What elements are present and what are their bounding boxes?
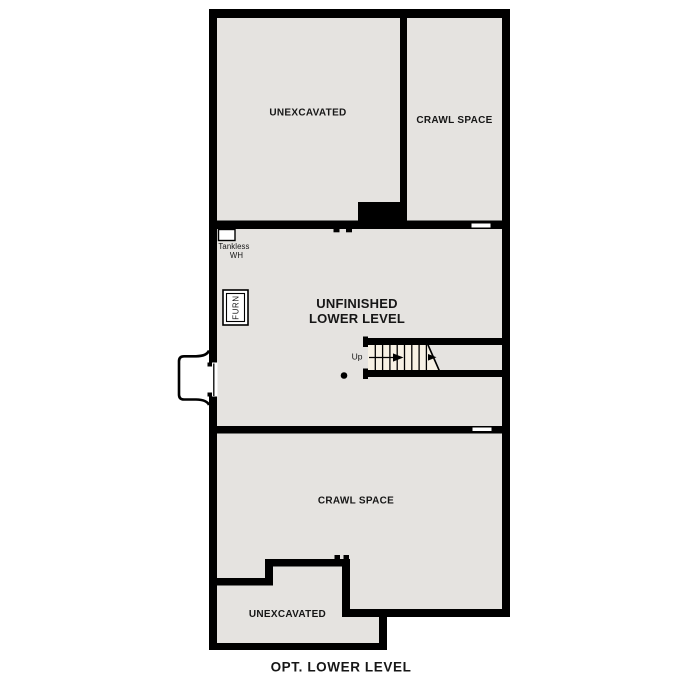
stair-up-label: Up: [352, 352, 363, 362]
window-jamb: [208, 363, 213, 367]
window-lower-wall: [473, 428, 492, 432]
room-unexcavated-top: [217, 18, 400, 221]
label-crawl-space-bottom: CRAWL SPACE: [318, 496, 394, 507]
stair-wall-bottom: [363, 370, 510, 377]
room-unfinished-lower-level: [217, 229, 502, 426]
support-post-icon: [341, 372, 348, 379]
door-jamb-icon: [335, 555, 341, 559]
window-well-outline: [179, 351, 209, 406]
door-jamb-icon: [334, 229, 340, 232]
door-jamb-icon: [346, 229, 352, 232]
floor-plan-page: Up Tankless WH FURN UNEXCAVATED CRAWL SP…: [0, 0, 687, 687]
furnace: FURN: [223, 290, 248, 325]
label-crawl-space-top: CRAWL SPACE: [416, 115, 492, 126]
tankless-wh-label-line1: Tankless: [218, 242, 249, 251]
label-unexcavated-bottom: UNEXCAVATED: [249, 609, 326, 620]
window-jamb: [208, 393, 213, 397]
window-upper-wall: [472, 224, 491, 228]
plan-title: OPT. LOWER LEVEL: [271, 660, 412, 675]
wall-block: [358, 202, 407, 229]
tankless-wh-box: [219, 230, 236, 241]
label-unfinished-line2: LOWER LEVEL: [309, 311, 405, 326]
label-unexcavated-top: UNEXCAVATED: [269, 108, 346, 119]
tankless-wh-label-line2: WH: [230, 251, 243, 260]
door-jamb-icon: [344, 555, 350, 559]
floor-plan-drawing: Up Tankless WH FURN UNEXCAVATED CRAWL SP…: [0, 0, 687, 687]
window-well-opening: [208, 363, 218, 397]
stair-wall-top: [363, 338, 510, 345]
label-unfinished-line1: UNFINISHED: [316, 296, 397, 311]
furnace-label: FURN: [231, 295, 240, 319]
